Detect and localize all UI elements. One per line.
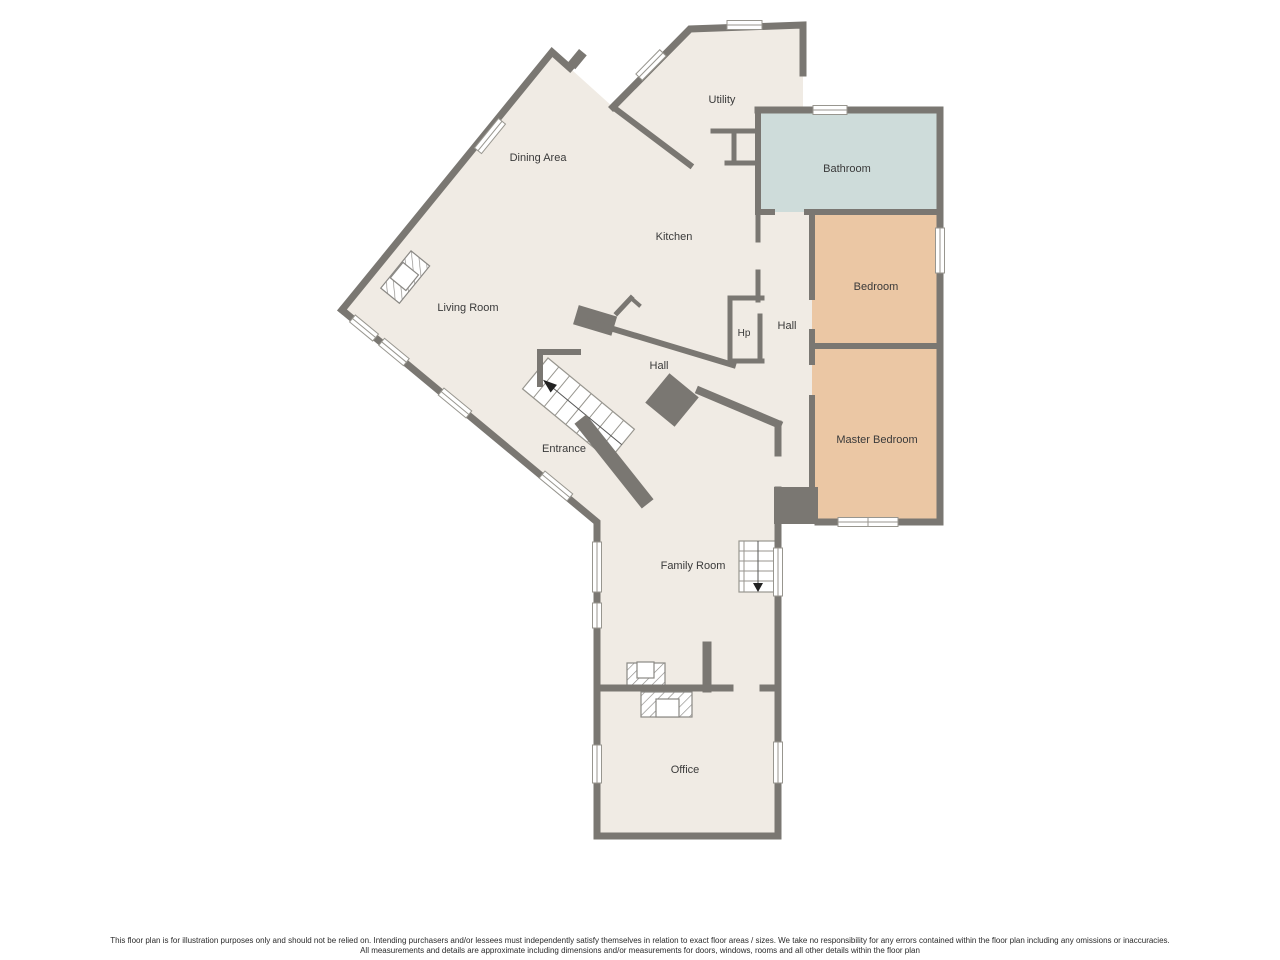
window-familyroom-left-b <box>593 603 602 628</box>
window-office-left <box>593 745 602 783</box>
label-utility: Utility <box>709 94 736 106</box>
office-fireplace <box>641 692 692 717</box>
label-bathroom: Bathroom <box>823 163 871 175</box>
label-master-bedroom: Master Bedroom <box>836 434 917 446</box>
window-master-bottom <box>838 518 898 527</box>
window-bedroom-right <box>936 228 945 273</box>
disclaimer-line-2: All measurements and details are approxi… <box>0 946 1280 956</box>
window-office-right <box>774 742 783 783</box>
room-bathroom <box>758 110 940 212</box>
family-room-fireplace <box>627 662 665 688</box>
floorplan-page: Utility Dining Area Kitchen Bathroom Bed… <box>0 0 1280 960</box>
label-kitchen: Kitchen <box>656 231 693 243</box>
label-family-room: Family Room <box>661 560 726 572</box>
window-familyroom-right <box>774 548 783 596</box>
disclaimer-text: This floor plan is for illustration purp… <box>0 936 1280 956</box>
label-living-room: Living Room <box>437 302 498 314</box>
label-hall-bedrooms: Hall <box>778 320 797 332</box>
label-entrance: Entrance <box>542 443 586 455</box>
family-room-stairs <box>739 541 776 592</box>
window-utility-top <box>727 21 762 30</box>
label-office: Office <box>671 764 700 776</box>
label-hall-main: Hall <box>650 360 669 372</box>
floorplan-canvas: Utility Dining Area Kitchen Bathroom Bed… <box>0 0 1280 960</box>
window-familyroom-left-a <box>593 542 602 592</box>
disclaimer-line-1: This floor plan is for illustration purp… <box>0 936 1280 946</box>
label-hp: Hp <box>738 328 751 339</box>
room-bedroom <box>812 212 940 346</box>
label-dining-area: Dining Area <box>510 152 568 164</box>
window-bathroom-top <box>813 106 847 115</box>
label-bedroom: Bedroom <box>854 281 899 293</box>
